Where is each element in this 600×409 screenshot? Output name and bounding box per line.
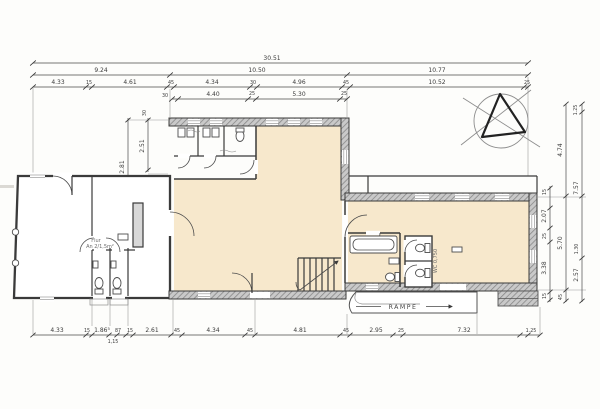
dim-label: 2.61 [145,327,159,334]
dim-label: 2.07 [541,209,548,223]
dim-label: 45 [343,328,349,334]
dim-label: 45 [343,80,349,86]
dim-label: 30 [162,93,168,99]
dim-label: 30 [250,80,256,86]
dim-label: 4.61 [123,79,137,86]
dim-sub-label: 1,15 [108,339,119,345]
bathtub [350,236,397,253]
dim-label: 2.57 [573,268,580,282]
toilet [95,278,103,295]
dim-label: 25 [542,233,548,239]
dim-label: 15 [542,293,548,299]
dim-label: 4.34 [206,327,220,334]
dim-label: 9.24 [94,67,108,74]
dim-label: 4.40 [206,91,220,98]
wall-fixture [118,234,128,240]
dim-label: 1.30 [574,244,580,255]
dim-label: 1.86⁵ [94,327,110,334]
dim-label: 4.33 [50,327,64,334]
dim-label: 15 [127,328,133,334]
dim-label: 7.57 [573,181,580,195]
dim-label: 25 [249,91,255,97]
sink [93,261,98,268]
toilet-tank [236,128,244,132]
sink [111,261,116,268]
dim-label: 2.81 [119,160,126,174]
sink [203,128,210,137]
bathroom [348,231,400,287]
left-wing: Flur An 2/1,5m² [12,173,170,306]
dim-label: 87 [115,328,121,334]
dim-label: 15 [84,328,90,334]
toilet [113,278,121,295]
sink [389,258,399,264]
dim-label: 45 [247,328,253,334]
dim-label: 25 [524,80,530,86]
radiator [452,247,462,252]
dim-label: 3.38 [541,261,548,275]
dim-label: 10.77 [428,67,445,74]
toilet [416,269,431,278]
room-label-flur-area: An 2/1,5m² [86,244,114,250]
scan-artifact [0,185,14,188]
toilet [386,273,400,282]
toilet [416,244,431,253]
dim-label: 10.50 [248,67,265,74]
dim-label: 5.30 [292,91,306,98]
dim-label: 45 [168,80,174,86]
dim-label: 2.51 [139,139,146,153]
label-rampe: RAMPE [389,304,418,311]
dim-label: 45 [558,294,564,300]
scanned-floor-plan-page: 30.51 9.24 10.50 10.77 4.33 15 4.61 45 4… [0,0,600,409]
dim-label: 4.34 [205,79,219,86]
dim-label: 1.25 [526,328,537,334]
dim-label: 25 [398,328,404,334]
dim-label: 5.70 [557,236,564,250]
dim-label: 25 [341,91,347,97]
dim-label: 30 [142,110,148,116]
sink [187,128,194,137]
sink [178,128,185,137]
dim-label: 15 [542,189,548,195]
dim-label: 4.74 [557,143,564,157]
dim-label: 1.25 [573,105,579,116]
dim-label: 7.32 [457,327,471,334]
room-label-wc: WC 0,750 [433,249,439,273]
exterior-wall [529,193,537,290]
dim-label: 2.95 [369,327,383,334]
dim-label: 10.52 [428,79,445,86]
duct-shaft [133,203,143,247]
right-dimension-column: 1.25 4.74 7.57 15 2.07 25 5.70 1.30 3.38… [541,102,585,304]
ramp: RAMPE [349,292,477,313]
sanitary-rooms [174,126,258,179]
dim-label: 45 [174,328,180,334]
floor-plan-drawing: 30.51 9.24 10.50 10.77 4.33 15 4.61 45 4… [0,0,600,409]
dim-label: 4.96 [292,79,306,86]
dim-total-width: 30.51 [263,55,280,62]
sink [212,128,219,137]
dim-label: 4.33 [51,79,65,86]
top-dimension-rows: 30.51 9.24 10.50 10.77 4.33 15 4.61 45 4… [30,55,530,101]
dim-label: 15 [86,80,92,86]
wall-column [12,229,18,235]
wall-column [12,260,18,266]
bottom-dimension-row: 4.33 15 1.86⁵ 87 15 2.61 45 4.34 45 4.81… [30,327,542,345]
dim-label: 4.81 [293,327,307,334]
